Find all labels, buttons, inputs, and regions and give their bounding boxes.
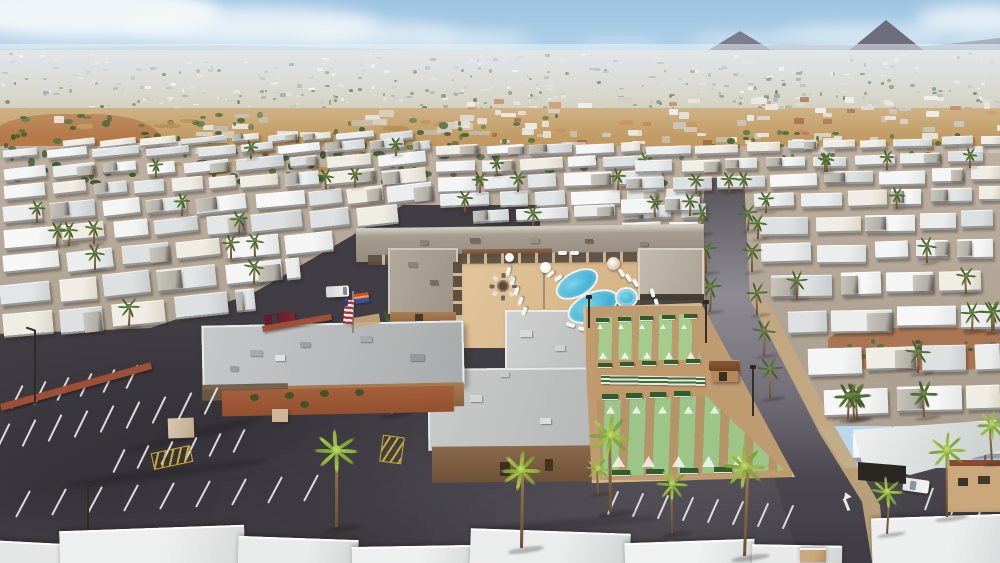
palm-frond [609,175,618,178]
palm-frond [961,276,967,287]
treeline [335,155,346,160]
suburb-roof-orange [492,133,497,137]
palm-frond [518,176,527,179]
tire-mark [470,513,660,535]
palm-frond [591,434,611,451]
palm-frond [504,279,514,291]
spa-hot-tub [617,289,636,306]
mobile-home [848,189,888,207]
desert-tree [496,152,500,158]
palm-frond [751,328,764,332]
mobile-home [717,175,765,189]
palm-trunk [886,493,891,534]
palm-trunk [354,175,356,187]
treeline [196,160,204,167]
palm-frond [520,454,537,472]
carport-awning [766,158,782,166]
dirt-bush [968,348,973,351]
mobile-home [897,385,963,412]
palm-frond [976,438,986,453]
palm-trunk [614,248,617,273]
pavement-markings-layer [0,0,1000,563]
city-speckle [665,71,667,73]
city-speckle [1,84,6,86]
palm-frond [696,173,703,181]
palm-frond [886,492,898,507]
city-speckle [680,110,685,113]
suburb-roof-orange [988,111,996,115]
mobile-home [824,171,873,185]
palm-trunk [769,370,771,398]
aerial-photograph-figure: Aerial drone photograph of a desert mobi… [0,0,1000,563]
mobile-home [622,205,671,223]
palm-frond [757,223,763,233]
palm-trunk [743,467,749,556]
suburb-roof-orange [794,118,804,124]
palm-frond [729,178,738,180]
city-speckle [893,107,896,110]
palm-frond [856,382,865,397]
palm-frond [516,471,523,492]
palm-shadow [964,330,986,336]
palm-shadow [982,460,1000,468]
palm-frond [917,352,927,364]
palm-frond [255,240,266,244]
palm-crown-center [964,273,969,278]
desert-tree [461,133,470,137]
desert-tree [183,152,188,158]
palm-frond [655,483,672,486]
desert-tree [21,117,30,122]
parking-stripe [136,445,149,469]
cloud [0,34,540,52]
palm-frond [689,201,696,210]
court-bench [684,314,697,318]
city-speckle [763,79,770,81]
dirt-streak [105,152,135,158]
palm-shadow [350,186,365,190]
city-speckle [864,63,866,66]
suburb-roof-white [504,146,520,152]
city-speckle [360,63,362,65]
palm-frond [649,242,657,251]
palm-frond [496,279,506,291]
palm-shadow [691,192,706,196]
suburb-roof-white [745,140,753,144]
palm-frond [745,292,757,294]
city-tree [25,78,29,80]
palm-frond [246,258,255,268]
palm-frond [883,157,889,165]
palm-crown-center [517,465,525,473]
desert-tree [458,121,461,126]
city-speckle [979,96,982,99]
palm-frond [839,395,854,399]
palm-trunk [56,231,58,246]
red-curb-median [262,314,332,332]
city-tree [753,87,756,90]
palm-frond [965,276,972,287]
palm-trunk [596,470,599,494]
palm-frond [822,152,828,160]
city-speckle [432,63,434,66]
palm-frond [796,270,802,281]
palm-trunk [154,166,156,178]
court-scoring-triangle [639,324,645,329]
palm-shadow [684,214,700,219]
palm-shadow [877,531,906,539]
city-speckle [431,78,437,80]
parking-stripe [632,493,645,518]
fire-pit-chair [493,291,499,297]
palm-frond [757,197,766,200]
yellow-hatch-marking [379,435,405,465]
city-speckle [655,57,659,59]
palm-frond [690,180,697,188]
suburb-roof-white [500,140,510,143]
city-speckle [688,109,691,111]
pool-alley [583,300,707,316]
court-shade-hut-wall [711,366,738,382]
right-tree [743,130,749,134]
city-tree [329,100,331,102]
desert-tree [16,134,20,138]
palm-frond [743,465,763,482]
palm-frond [838,396,849,410]
desert-tree [451,141,459,146]
palm-shadow [986,329,1000,335]
court-scoring-triangle [710,406,719,414]
city-speckle [153,54,156,57]
palm-trunk [254,242,256,257]
city-tree [779,106,784,109]
city-speckle [781,80,786,82]
parking-stripe [184,437,197,461]
city-tree [480,107,483,109]
palm-frond [847,396,857,410]
city-speckle [619,88,624,90]
mobile-home [440,192,490,208]
palm-frond [500,469,521,474]
fire-pit-chair [493,276,499,282]
palm-crown-center [700,210,705,215]
palm-shadow [762,395,786,402]
parking-stripe [79,373,92,397]
palm-frond [151,157,157,165]
carport-awning [931,190,948,202]
carport-awning [196,197,218,212]
shuffleboard-lanes-top [592,314,701,364]
city-tree [349,89,353,91]
suburb-roof-orange [703,140,712,145]
desert-tree [542,116,550,121]
city-speckle [768,77,772,79]
palm-crown-center [743,176,746,179]
palm-frond [321,175,327,183]
city-speckle [701,91,704,93]
fire-pit-chair [501,295,505,300]
dirt-bush [917,345,924,350]
parking-stripe [51,488,67,516]
palm-frond [744,178,753,180]
city-speckle [548,102,553,105]
treeline [474,176,480,181]
city-speckle [955,81,960,84]
palm-frond [886,480,900,494]
palm-crown-center [823,157,826,160]
palm-shadow [848,416,874,424]
palm-frond [847,383,857,397]
city-speckle [594,68,600,71]
city-speckle [598,93,601,95]
palm-frond [752,281,758,293]
desert-tree [296,136,299,142]
city-speckle [461,89,464,92]
palm-frond [825,158,833,160]
palm-shadow [151,176,165,180]
palm-trunk [517,179,519,192]
desert-tree [65,149,73,152]
treeline [285,172,292,177]
carport-awning [303,134,315,141]
city-speckle [830,72,836,75]
palm-trunk [847,397,850,419]
palm-shadow [249,255,267,260]
palm-frond [847,382,856,397]
court-scoring-triangle [672,456,685,467]
suburb-roof-white [562,142,573,146]
rec-hall-door-2 [545,459,553,471]
palm-crown-center [616,173,619,176]
foreground-mobile-home-roof [469,528,631,563]
palm-frond [605,436,612,459]
palm-frond [56,230,62,240]
cloud [420,32,530,47]
mobile-home [181,135,225,147]
palm-frond [654,202,659,211]
city-tree [690,70,695,73]
palm-shadow [695,231,715,237]
palm-frond [701,203,708,214]
palm-frond [549,244,560,248]
desert-building [203,125,214,130]
palm-trunk [895,441,898,465]
lounge-chair [625,273,633,283]
dirt-bush [947,352,952,356]
right-tree [816,136,819,141]
right-tree [795,141,802,145]
desert-tree [338,147,346,153]
city-speckle [384,70,389,73]
palm-crown-center [558,244,562,248]
city-speckle [841,91,847,93]
city-speckle [586,104,590,106]
palm-shadow [31,221,48,226]
suburb-roof-white [885,102,893,105]
dirt-streak [30,117,47,123]
mobile-home [534,190,565,208]
palm-trunk [921,395,924,417]
palm-shadow [883,168,897,172]
palm-frond [984,424,995,439]
city-speckle [621,102,625,104]
mobile-home [900,153,940,165]
office-building [946,460,1000,512]
city-speckle [182,100,185,102]
palm-crown-center [606,430,615,439]
palm-trunk [93,229,95,244]
palm-frond [644,159,649,167]
palm-frond [527,204,534,213]
city-speckle [244,61,248,63]
palm-shadow [976,460,1000,468]
suburb-roof-white [628,130,638,134]
palm-frond [945,451,950,471]
suburb-roof-orange [800,97,809,102]
palm-frond [751,242,760,252]
palm-frond [763,330,772,342]
city-speckle [190,90,197,92]
palm-frond [945,431,950,451]
palm-frond [926,246,932,256]
right-tree [650,150,653,153]
city-speckle [527,99,532,101]
city-speckle [131,76,135,79]
city-speckle [280,93,286,96]
palm-frond [248,233,256,242]
palm-frond [985,437,1000,442]
dirt-streak [351,148,363,154]
desert-tree [502,139,507,143]
palm-frond [757,291,769,294]
mobile-home [240,141,273,154]
palm-shadow [739,190,754,194]
city-tree [976,99,979,102]
palm-shadow [527,226,544,231]
desert-tree [248,124,254,129]
mobile-home [666,187,700,204]
palm-crown-center [253,238,257,242]
palm-frond [820,159,825,167]
palm-trunk [520,471,524,548]
palm-frond [756,282,764,294]
east-building-south-wall [640,294,704,312]
mobile-home [63,137,96,149]
mobile-home [62,221,105,242]
palm-frond [969,437,985,441]
carport-awning [83,311,103,333]
city-speckle [609,111,614,114]
palm-frond [532,203,537,213]
palm-trunk [886,158,888,170]
palm-frond [705,239,714,250]
city-speckle [499,96,502,98]
palm-trunk [253,268,255,284]
palm-frond [697,202,703,213]
mobile-home [435,160,474,173]
palm-frond [523,210,533,213]
palm-frond [336,449,359,453]
desert-tree [167,120,174,125]
city-speckle [145,86,151,89]
suburb-roof-white [867,142,880,146]
palm-trunk [649,252,651,267]
mobile-home [377,151,426,169]
palm-frond [696,179,705,181]
city-speckle [439,81,442,83]
carport-roof [853,420,1000,475]
mobile-home [277,142,320,156]
city-speckle [739,97,744,100]
suburb-roof-white [460,115,474,121]
palm-trunk [655,285,657,302]
palm-shadow [702,310,724,316]
mobile-home [979,186,1000,201]
palm-frond [887,194,896,197]
city-speckle [261,96,266,99]
desert-tree [444,132,451,136]
city-speckle [527,97,532,100]
city-speckle [78,77,83,79]
mobile-home [285,170,320,188]
parking-stripe [682,497,695,522]
city-speckle [995,100,1000,103]
dirt-streak [77,124,93,129]
city-tree [932,87,936,90]
mobile-home [617,169,663,187]
carport-awning [156,269,183,289]
palm-frond [559,237,566,247]
palm-frond [766,196,775,199]
palm-frond [723,179,729,187]
city-tree [807,124,811,128]
palm-trunk [238,220,240,234]
mobile-home [0,281,52,307]
city-tree [973,92,977,95]
city-tree [946,109,951,112]
palm-frond [475,172,481,180]
desert-building [195,147,213,154]
treeline [333,152,343,158]
tire-mark [60,455,270,491]
palm-crown-center [612,243,618,249]
mobile-home [931,188,972,204]
desert-tree [102,120,110,127]
desert-tree [77,114,86,118]
palm-crown-center [746,210,750,214]
mobile-home [646,145,691,157]
palm-frond [383,361,392,376]
palm-frond [94,227,104,230]
flag-pole [352,291,354,333]
carport-awning [472,211,488,221]
palm-frond [873,481,888,494]
city-tree [208,115,213,118]
palm-frond [955,274,967,277]
palm-frond [853,395,864,409]
palm-crown-center [895,192,899,196]
palm-frond [182,200,191,202]
mobile-home [256,189,306,209]
suburb-roof-orange [950,106,961,110]
palm-frond [613,168,618,177]
palm-trunk [495,164,497,176]
desert-tree [196,121,205,128]
palm-frond [472,178,481,181]
palm-frond [396,142,404,144]
red-curb-median [0,362,152,410]
palm-frond [587,460,598,470]
